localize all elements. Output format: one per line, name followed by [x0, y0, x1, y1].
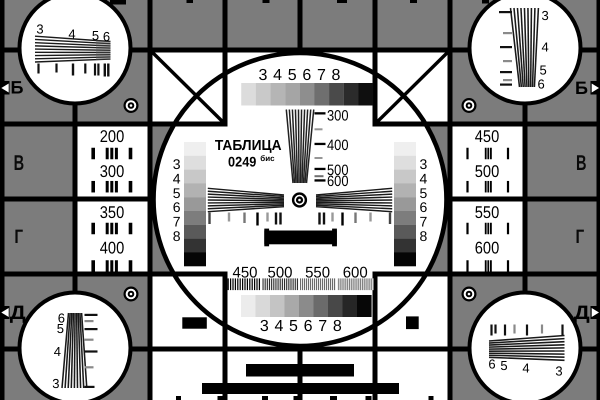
svg-text:ТАБЛИЦА: ТАБЛИЦА — [215, 138, 282, 154]
svg-text:6: 6 — [488, 357, 495, 372]
svg-text:бис: бис — [260, 154, 275, 163]
svg-text:4: 4 — [274, 318, 283, 335]
svg-text:Д: Д — [574, 302, 590, 324]
svg-text:400: 400 — [327, 137, 349, 154]
svg-text:5: 5 — [500, 358, 507, 373]
svg-text:3: 3 — [52, 376, 59, 391]
svg-text:Г: Г — [14, 226, 23, 248]
svg-text:7: 7 — [318, 318, 327, 335]
svg-text:350: 350 — [100, 203, 125, 222]
svg-text:4: 4 — [522, 361, 529, 376]
svg-text:8: 8 — [333, 318, 342, 335]
svg-text:3: 3 — [260, 318, 269, 335]
svg-text:5: 5 — [92, 28, 99, 43]
svg-text:8: 8 — [420, 228, 428, 244]
svg-text:300: 300 — [100, 162, 125, 181]
svg-text:600: 600 — [327, 173, 349, 190]
svg-text:6: 6 — [302, 67, 311, 84]
svg-text:0249: 0249 — [228, 154, 256, 170]
svg-text:Б: Б — [11, 78, 24, 98]
svg-text:6: 6 — [538, 77, 545, 92]
svg-text:550: 550 — [475, 203, 500, 222]
svg-text:В: В — [576, 151, 587, 175]
svg-text:6: 6 — [103, 29, 110, 44]
svg-text:5: 5 — [57, 321, 64, 336]
svg-text:4: 4 — [542, 40, 549, 55]
svg-text:6: 6 — [304, 318, 313, 335]
svg-text:3: 3 — [36, 22, 43, 37]
svg-text:3: 3 — [542, 8, 549, 23]
svg-text:500: 500 — [475, 162, 500, 181]
svg-text:Д: Д — [10, 302, 26, 324]
svg-text:Г: Г — [575, 226, 584, 248]
svg-text:5: 5 — [288, 67, 297, 84]
svg-text:450: 450 — [475, 127, 500, 146]
svg-text:300: 300 — [327, 108, 349, 125]
svg-text:3: 3 — [555, 364, 562, 379]
svg-text:8: 8 — [332, 67, 341, 84]
svg-text:400: 400 — [100, 239, 125, 258]
svg-text:5: 5 — [540, 63, 547, 78]
svg-text:8: 8 — [173, 228, 181, 244]
svg-text:7: 7 — [317, 67, 326, 84]
svg-text:5: 5 — [289, 318, 298, 335]
svg-text:600: 600 — [475, 239, 500, 258]
svg-text:В: В — [14, 151, 25, 175]
svg-text:200: 200 — [100, 127, 125, 146]
svg-text:4: 4 — [54, 344, 61, 359]
svg-text:4: 4 — [68, 27, 75, 42]
svg-text:4: 4 — [273, 67, 282, 84]
svg-text:3: 3 — [259, 67, 268, 84]
svg-text:Б: Б — [575, 78, 588, 98]
